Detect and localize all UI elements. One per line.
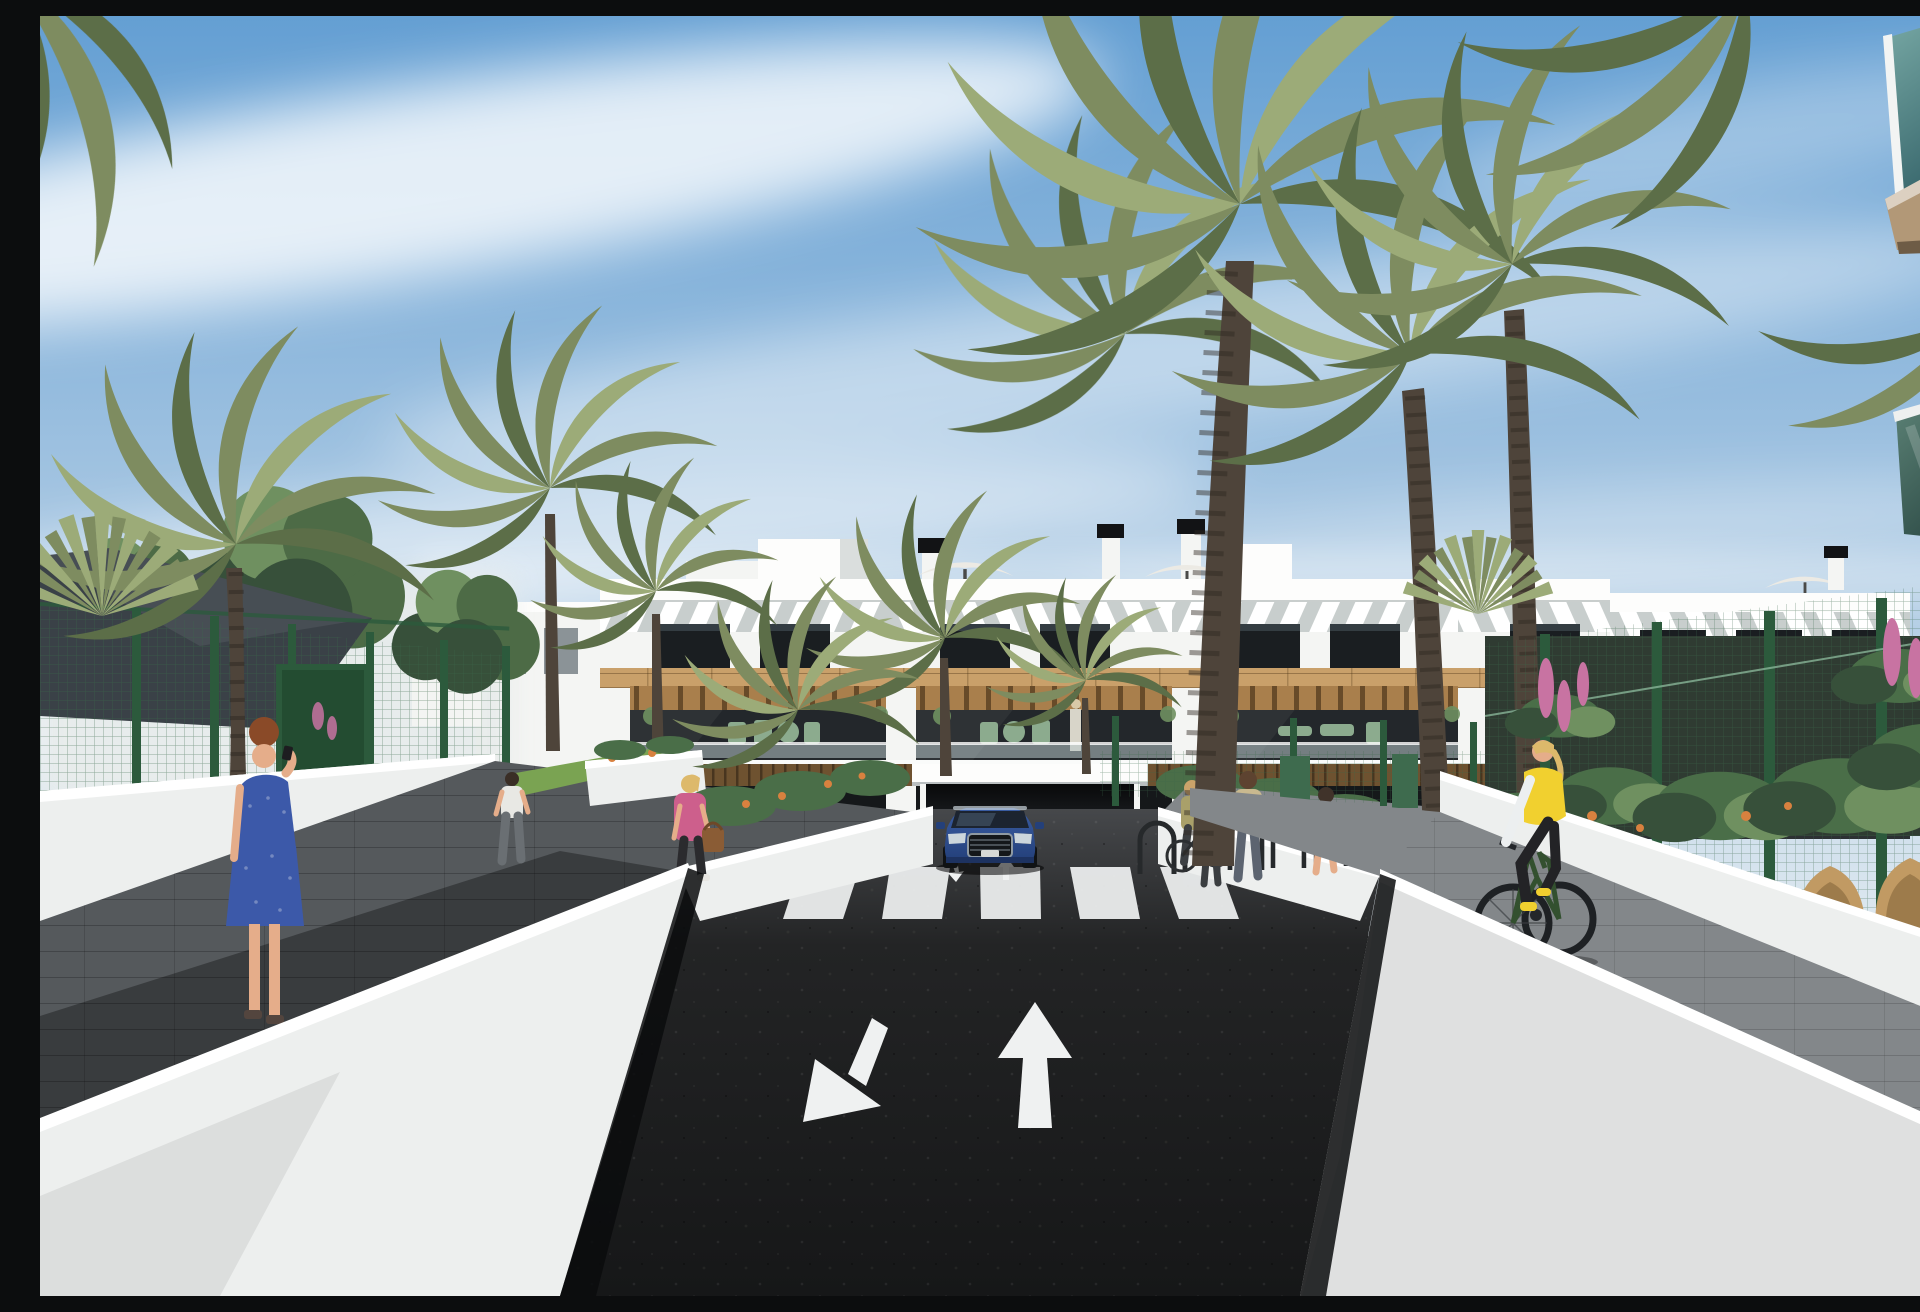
green-door <box>1392 754 1418 808</box>
scene-canvas <box>40 16 1920 1296</box>
architectural-rendering <box>40 16 1920 1296</box>
